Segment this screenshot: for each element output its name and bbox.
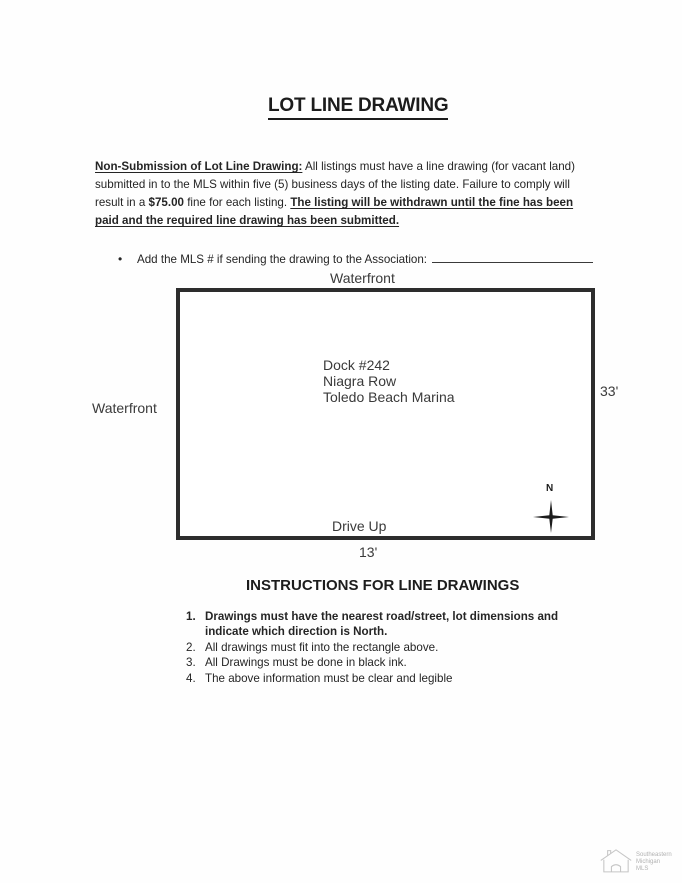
mls-watermark-logo: Southeastern Michigan MLS xyxy=(597,843,682,883)
mls-number-blank xyxy=(432,251,593,263)
instruction-number: 2. xyxy=(186,640,205,655)
instruction-item-4: 4. The above information must be clear a… xyxy=(186,671,598,686)
drive-up-label: Drive Up xyxy=(332,518,386,534)
instructions-heading: INSTRUCTIONS FOR LINE DRAWINGS xyxy=(246,577,519,594)
lot-description-line-1: Dock #242 xyxy=(323,357,455,373)
policy-fine-amount: $75.00 xyxy=(149,196,184,209)
instruction-text: All Drawings must be done in black ink. xyxy=(205,655,407,670)
policy-label: Non-Submission of Lot Line Drawing: xyxy=(95,160,302,173)
watermark-line-3: MLS xyxy=(636,866,672,873)
compass-rose-icon xyxy=(529,495,573,539)
document-page: LOT LINE DRAWING Non-Submission of Lot L… xyxy=(0,0,682,883)
watermark-line-1: Southeastern xyxy=(636,852,672,859)
waterfront-left-label: Waterfront xyxy=(92,400,157,416)
mls-note-text: Add the MLS # if sending the drawing to … xyxy=(137,253,427,266)
instruction-item-1: 1. Drawings must have the nearest road/s… xyxy=(186,609,598,640)
lot-description-line-2: Niagra Row xyxy=(323,373,455,389)
instruction-text: The above information must be clear and … xyxy=(205,671,452,686)
policy-body-2: fine for each listing. xyxy=(184,196,290,209)
watermark-text: Southeastern Michigan MLS xyxy=(636,852,672,873)
instruction-item-2: 2. All drawings must fit into the rectan… xyxy=(186,640,598,655)
lot-description: Dock #242 Niagra Row Toledo Beach Marina xyxy=(323,357,455,405)
right-dimension-label: 33' xyxy=(600,383,618,399)
page-title: LOT LINE DRAWING xyxy=(268,95,448,120)
lot-description-line-3: Toledo Beach Marina xyxy=(323,389,455,405)
house-icon xyxy=(597,845,635,879)
instruction-text: Drawings must have the nearest road/stre… xyxy=(205,609,577,640)
instruction-number: 3. xyxy=(186,655,205,670)
compass-north-label: N xyxy=(546,483,553,494)
instructions-list: 1. Drawings must have the nearest road/s… xyxy=(186,609,598,686)
instruction-number: 1. xyxy=(186,609,205,640)
page-title-text: LOT LINE DRAWING xyxy=(268,95,448,120)
policy-paragraph: Non-Submission of Lot Line Drawing: All … xyxy=(95,158,597,230)
instruction-item-3: 3. All Drawings must be done in black in… xyxy=(186,655,598,670)
instruction-text: All drawings must fit into the rectangle… xyxy=(205,640,438,655)
instruction-number: 4. xyxy=(186,671,205,686)
bullet-icon: • xyxy=(118,252,137,266)
watermark-line-2: Michigan xyxy=(636,859,672,866)
waterfront-top-label: Waterfront xyxy=(330,270,395,286)
mls-note: •Add the MLS # if sending the drawing to… xyxy=(118,251,593,266)
bottom-dimension-label: 13' xyxy=(359,544,377,560)
